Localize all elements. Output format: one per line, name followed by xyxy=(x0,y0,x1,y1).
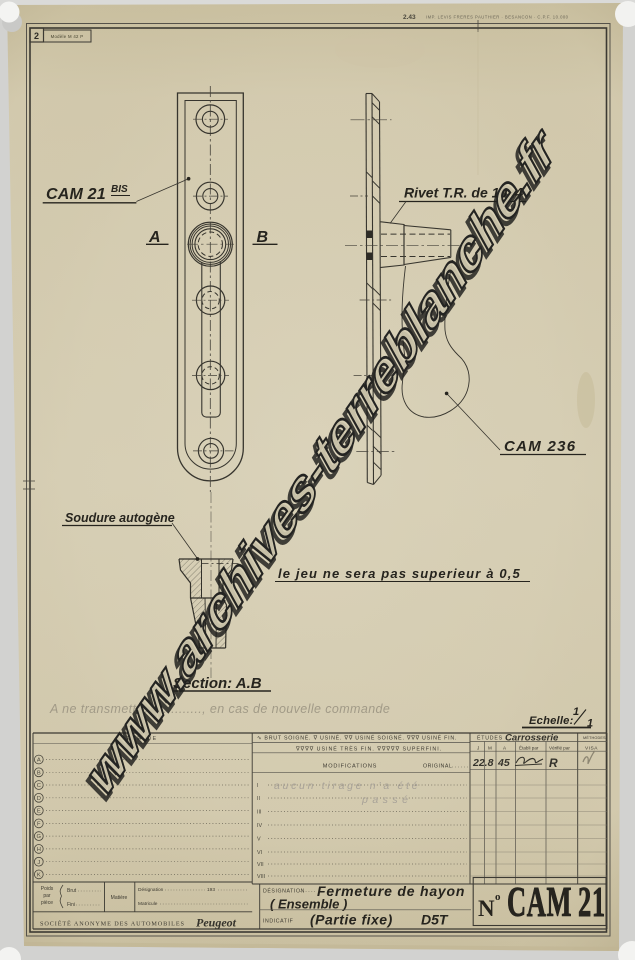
svg-text:A: A xyxy=(37,758,41,764)
svg-text:IMP. LEVIS FRERES PAUTHIER · B: IMP. LEVIS FRERES PAUTHIER · BESANCON · … xyxy=(426,15,569,20)
svg-text:le jeu ne sera pas superieur à: le jeu ne sera pas superieur à 0,5 xyxy=(278,566,521,581)
svg-text:1: 1 xyxy=(573,706,579,718)
svg-text:Désignation: Désignation xyxy=(138,887,164,893)
svg-text:VISA: VISA xyxy=(585,746,598,752)
svg-text:Matricule: Matricule xyxy=(138,901,158,907)
svg-text:Brut: Brut xyxy=(67,888,77,894)
svg-text:B: B xyxy=(257,229,269,246)
svg-text:BIS: BIS xyxy=(111,184,128,195)
svg-text:CAM 236: CAM 236 xyxy=(504,438,576,455)
svg-text:J: J xyxy=(477,746,479,751)
svg-text:M: M xyxy=(488,746,492,751)
svg-text:CAM 21: CAM 21 xyxy=(507,879,606,926)
svg-text:Modèle M 42 P: Modèle M 42 P xyxy=(51,34,84,39)
svg-text:2.43: 2.43 xyxy=(403,14,416,21)
svg-text:D5T: D5T xyxy=(421,912,449,928)
svg-text:passé: passé xyxy=(361,794,413,806)
svg-text:Matière: Matière xyxy=(111,895,128,901)
svg-text:ÉTUDES: ÉTUDES xyxy=(477,735,503,742)
svg-text:IV: IV xyxy=(257,823,262,829)
svg-text:VI: VI xyxy=(257,850,262,856)
svg-text:Soudure autogène: Soudure autogène xyxy=(65,511,175,525)
svg-text:G: G xyxy=(37,834,42,840)
svg-text:2: 2 xyxy=(34,31,39,41)
svg-text:22.8: 22.8 xyxy=(472,757,494,769)
svg-text:Echelle:: Echelle: xyxy=(529,715,574,727)
svg-text:( Ensemble ): ( Ensemble ) xyxy=(270,897,347,912)
svg-text:A ne transmettre à ..........,: A ne transmettre à .........., en cas de… xyxy=(49,702,390,716)
svg-text:∿ BRUT SOIGNÉ. ∇ USINÉ. ∇∇ U: ∿ BRUT SOIGNÉ. ∇ USINÉ. ∇∇ USINÉ SOIGNÉ.… xyxy=(257,735,457,742)
svg-text:F: F xyxy=(37,822,41,828)
svg-text:H: H xyxy=(37,847,41,853)
svg-text:pièce: pièce xyxy=(41,900,53,906)
svg-text:(Partie fixe): (Partie fixe) xyxy=(310,912,393,928)
svg-text:45: 45 xyxy=(497,757,510,769)
svg-text:par: par xyxy=(43,893,51,899)
svg-text:R: R xyxy=(549,756,558,770)
svg-text:II: II xyxy=(257,796,260,802)
svg-text:VII: VII xyxy=(257,862,264,868)
svg-text:SOCIÉTÉ ANONYME DES AUTOMOBILE: SOCIÉTÉ ANONYME DES AUTOMOBILES xyxy=(40,920,185,928)
svg-text:MÉTHODES: MÉTHODES xyxy=(583,735,606,740)
svg-text:N: N xyxy=(478,896,495,921)
svg-text:E: E xyxy=(37,809,41,815)
svg-text:Poids: Poids xyxy=(41,886,54,892)
svg-text:aucun tirage n’a été: aucun tirage n’a été xyxy=(274,780,420,792)
svg-text:D: D xyxy=(37,796,41,802)
svg-text:K: K xyxy=(37,873,41,879)
svg-text:∇∇∇∇ USINÉ TRÈS FIN. ∇∇∇∇∇ SU: ∇∇∇∇ USINÉ TRÈS FIN. ∇∇∇∇∇ SUPERFINI. xyxy=(295,745,442,752)
svg-text:o: o xyxy=(495,891,501,903)
svg-text:ORIGINAL: ORIGINAL xyxy=(423,764,452,770)
svg-text:J: J xyxy=(37,860,40,866)
svg-text:Vérifié par: Vérifié par xyxy=(549,746,570,751)
svg-text:V: V xyxy=(257,837,261,843)
svg-text:I: I xyxy=(257,783,259,789)
svg-text:III: III xyxy=(257,810,262,816)
svg-text:MODIFICATIONS: MODIFICATIONS xyxy=(323,764,377,770)
svg-text:INDICATIF: INDICATIF xyxy=(263,919,293,925)
svg-text:CAM 21: CAM 21 xyxy=(46,186,106,203)
svg-text:B: B xyxy=(37,770,41,776)
svg-text:Fini: Fini xyxy=(67,902,75,908)
svg-text:A: A xyxy=(148,229,161,246)
svg-text:Peugeot: Peugeot xyxy=(196,916,237,930)
svg-text:193: 193 xyxy=(207,887,215,893)
svg-text:DÉSIGNATION: DÉSIGNATION xyxy=(263,888,305,895)
svg-text:Établi par: Établi par xyxy=(519,745,539,751)
svg-text:VIII: VIII xyxy=(257,874,265,880)
svg-text:C: C xyxy=(37,783,41,789)
